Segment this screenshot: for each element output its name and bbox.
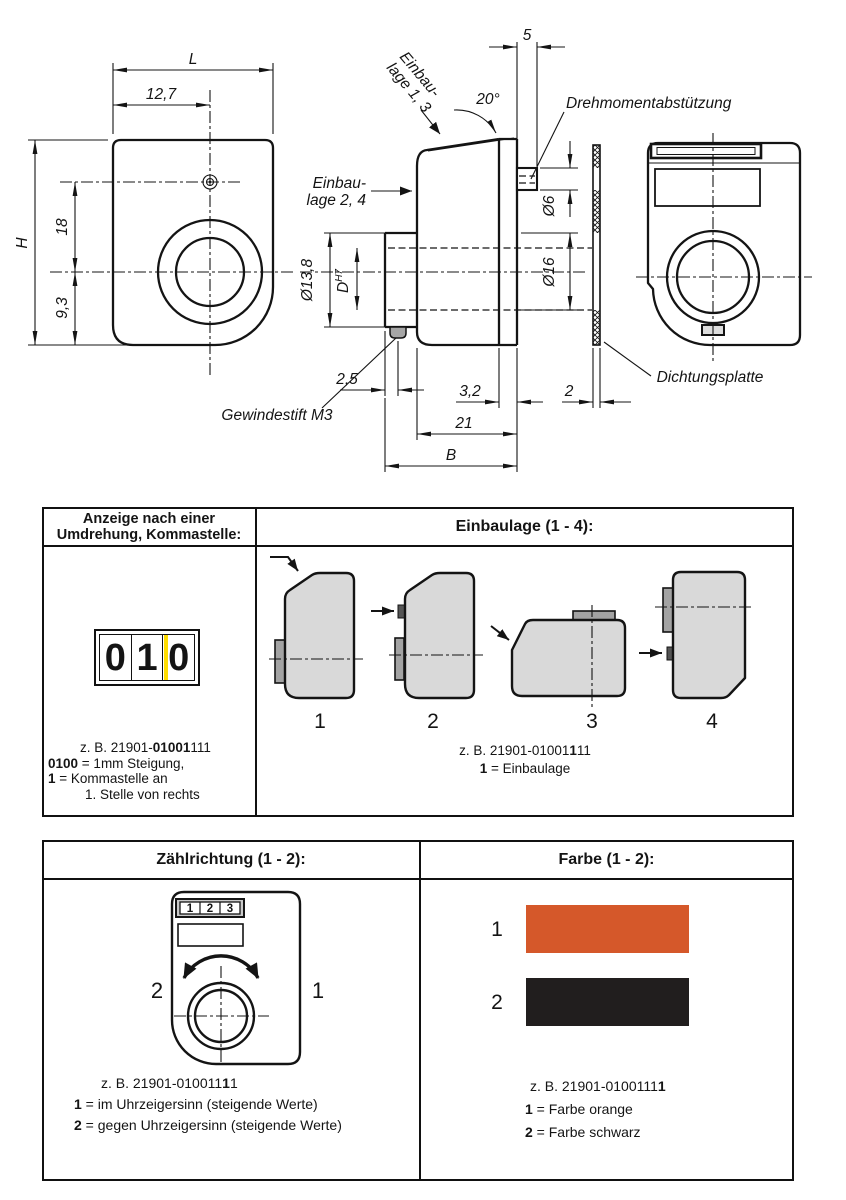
- dim-16: Ø16: [541, 257, 558, 288]
- position-1-number: 1: [314, 710, 326, 733]
- dim-2: 2: [564, 383, 574, 400]
- position-4: 4: [639, 572, 754, 733]
- color-1-label: 1: [482, 918, 512, 942]
- table2-column-divider: [419, 842, 422, 1179]
- dim-21: 21: [454, 415, 472, 432]
- set-screw: [390, 327, 406, 338]
- dim-B: B: [446, 447, 456, 464]
- counter-display: 0 1 0: [94, 629, 200, 686]
- dim-H: H: [14, 237, 31, 249]
- dim-12-7: 12,7: [146, 86, 178, 103]
- rear-view: [636, 133, 812, 362]
- torque-support-tab: [517, 168, 537, 190]
- dim-18: 18: [54, 218, 71, 236]
- farbe-caption: z. B. 21901-01001111 1 = Farbe orange 2 …: [525, 1075, 666, 1144]
- header-farbe: Farbe (1 - 2):: [421, 842, 792, 878]
- position-2: 2: [371, 573, 483, 733]
- counter-digit-2: 1: [131, 635, 163, 680]
- einbaulage-positions: 1 2 3 4: [257, 547, 787, 811]
- position-4-number: 4: [706, 710, 718, 733]
- table-anzeige-einbaulage: Anzeige nach einer Umdrehung, Kommastell…: [42, 507, 794, 817]
- dim-20deg: 20°: [475, 91, 499, 108]
- gewindestift-label: Gewindestift M3: [221, 407, 333, 424]
- anzeige-caption: z. B. 21901-01001111 0100 = 1mm Steigung…: [48, 740, 251, 802]
- ccw-label: 2: [151, 978, 163, 1003]
- color-1-swatch-orange: [526, 905, 689, 953]
- header-anzeige: Anzeige nach einer Umdrehung, Kommastell…: [44, 509, 254, 545]
- svg-text:Einbau-: Einbau-: [313, 175, 366, 192]
- dim-13-8: Ø13,8: [299, 259, 316, 303]
- technical-drawing: L 12,7 H 18 9,3: [0, 0, 846, 500]
- einbaulage-caption-line2: 1 = Einbaulage: [480, 761, 570, 776]
- header-zaehlrichtung: Zählrichtung (1 - 2):: [44, 842, 418, 878]
- svg-text:lage 2, 4: lage 2, 4: [307, 192, 367, 209]
- dial-digit-1: 1: [187, 903, 194, 915]
- dim-2-5: 2,5: [335, 371, 358, 388]
- comma-marker: [164, 635, 168, 680]
- counter-window: 0 1 0: [99, 634, 195, 681]
- dim-9-3: 9,3: [54, 297, 71, 319]
- zaehlrichtung-caption: z. B. 21901-01001111 1 = im Uhrzeigersin…: [74, 1073, 342, 1136]
- dim-L: L: [189, 51, 198, 68]
- header-einbaulage: Einbaulage (1 - 4):: [257, 509, 792, 545]
- color-2-label: 2: [482, 991, 512, 1015]
- einbaulage-1-3-label: Einbau- lage 1, 3: [383, 49, 448, 117]
- position-1: 1: [269, 557, 363, 733]
- table-zaehlrichtung-farbe: Zählrichtung (1 - 2): Farbe (1 - 2): 1 2…: [42, 840, 794, 1181]
- catalog-page: L 12,7 H 18 9,3: [0, 0, 846, 1200]
- position-3-number: 3: [586, 710, 598, 733]
- dim-3-2: 3,2: [459, 383, 481, 400]
- position-3: 3: [491, 605, 625, 733]
- position-2-number: 2: [427, 710, 439, 733]
- side-view: 5 20° Einbau- lage 1, 3 Einbau- lage 2, …: [221, 27, 731, 472]
- dim-5: 5: [523, 27, 532, 44]
- dial-label-window: [178, 924, 243, 946]
- einbaulage-caption-code: z. B. 21901-01001111: [459, 743, 591, 758]
- einbaulage-2-4-label: Einbau- lage 2, 4: [307, 175, 367, 209]
- dim-6: Ø6: [541, 195, 558, 217]
- color-2-swatch-black: [526, 978, 689, 1026]
- label-window: [655, 169, 760, 206]
- drehmomentabstuetzung-label: Drehmomentabstützung: [566, 95, 732, 112]
- cw-label: 1: [312, 978, 324, 1003]
- dichtungsplatte-label: Dichtungsplatte: [657, 369, 764, 386]
- counter-digit-1: 0: [100, 635, 131, 680]
- front-view: L 12,7 H 18 9,3: [14, 51, 295, 375]
- dial-digit-2: 2: [207, 903, 213, 915]
- dial-digit-3: 3: [227, 903, 233, 915]
